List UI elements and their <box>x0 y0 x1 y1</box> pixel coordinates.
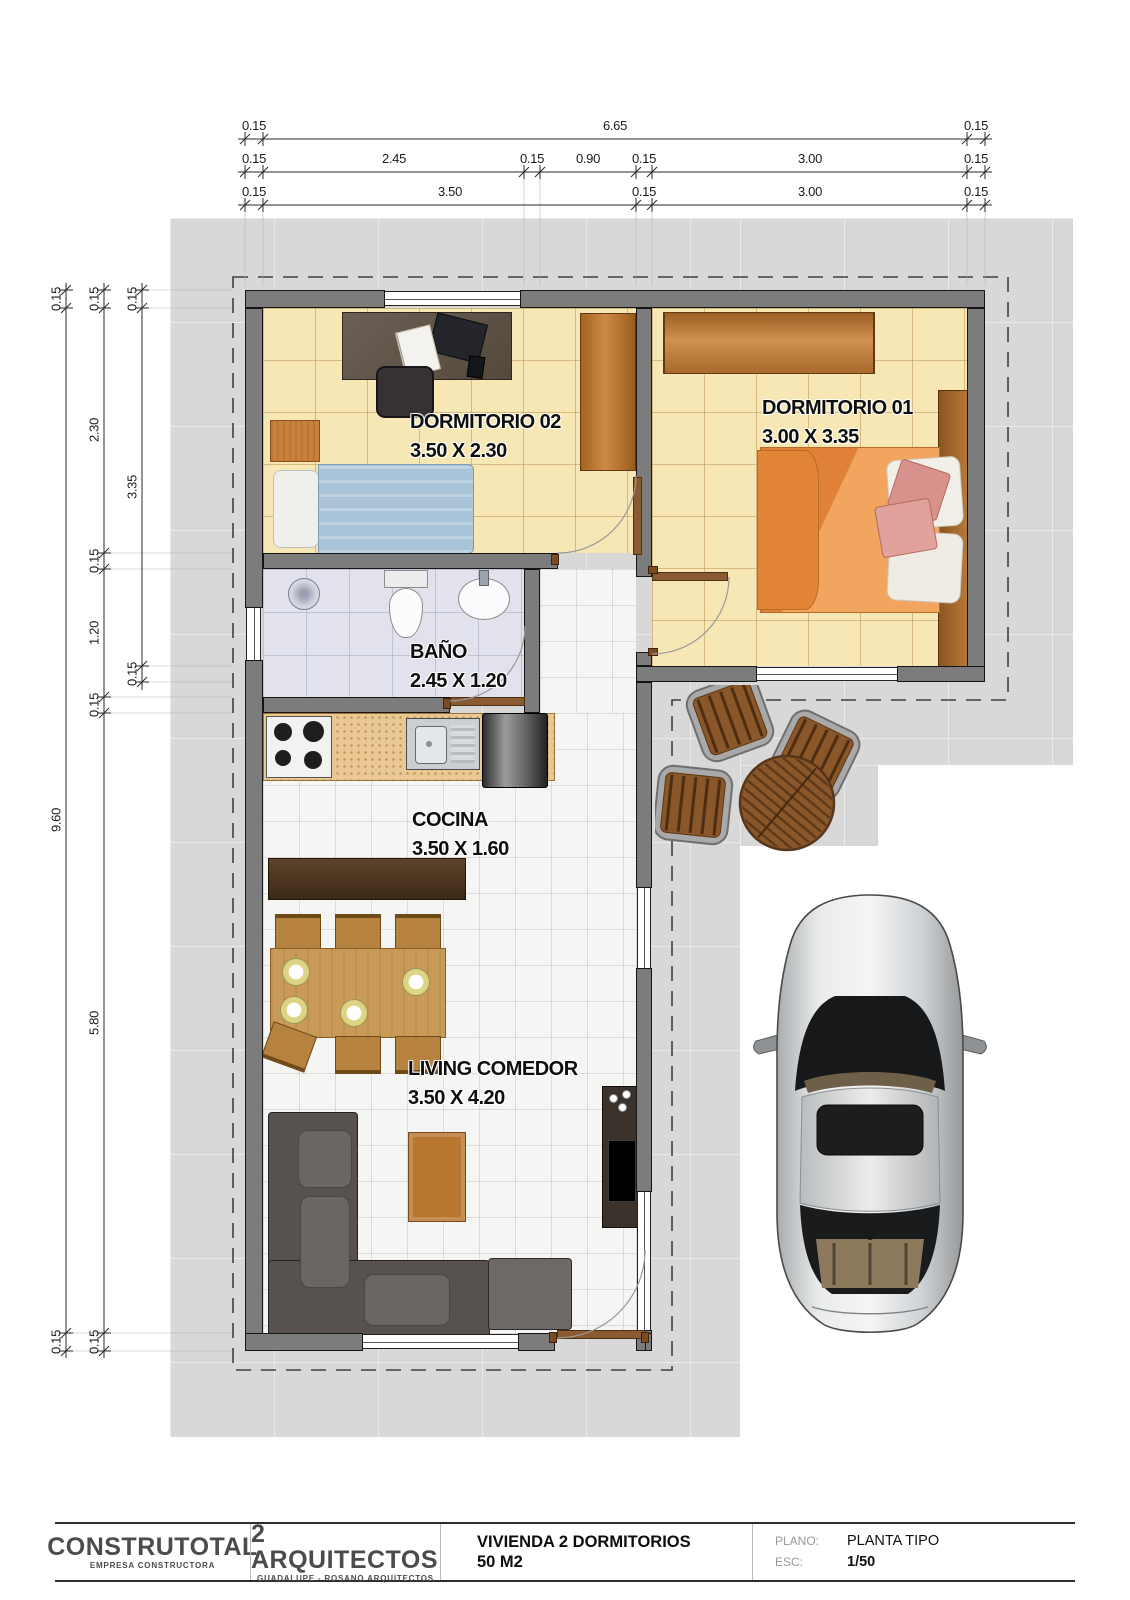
stove <box>266 716 332 778</box>
toilet-tank <box>384 570 428 588</box>
room-label-dormitorio-01: DORMITORIO 013.00 X 3.35 <box>762 394 913 452</box>
door-jamb <box>648 566 658 574</box>
wall <box>967 308 985 682</box>
title-block-project: VIVIENDA 2 DORMITORIOS 50 M2 <box>440 1524 752 1580</box>
wall <box>520 290 985 308</box>
dim-label: 0.15 <box>632 151 656 166</box>
single-bed-blanket <box>318 464 474 554</box>
dim-label: 6.65 <box>603 118 627 133</box>
wall <box>245 660 263 1351</box>
sofa-cushion <box>298 1130 352 1188</box>
bath-sink-tap <box>479 570 489 586</box>
door-leaf-dormitorio-01 <box>652 572 728 581</box>
dim-label: 2.30 <box>87 418 102 442</box>
dim-label: 0.15 <box>242 118 266 133</box>
dim-label: 0.15 <box>242 184 266 199</box>
wall <box>263 553 558 569</box>
car-windshield <box>795 996 945 1091</box>
room-label-dormitorio-02: DORMITORIO 023.50 X 2.30 <box>410 408 561 466</box>
sofa-cushion <box>364 1274 450 1326</box>
door-leaf-entrance <box>557 1330 646 1339</box>
dining-chair <box>275 914 321 952</box>
car-dashboard <box>804 1072 936 1093</box>
sofa-cushion <box>300 1196 350 1288</box>
dim-label: 3.35 <box>125 475 140 499</box>
wall <box>636 682 652 888</box>
company-subtitle: EMPRESA CONSTRUCTORA <box>90 1561 215 1570</box>
dim-label: 0.90 <box>576 151 600 166</box>
car-rear-window <box>800 1205 940 1294</box>
dim-label: 5.80 <box>87 1011 102 1035</box>
closet <box>663 312 875 374</box>
dining-chair <box>335 1036 381 1074</box>
decor-vase <box>618 1103 627 1112</box>
decor-vase <box>622 1090 631 1099</box>
door-jamb <box>648 648 658 656</box>
door-jamb <box>641 1332 649 1343</box>
car-mirror-left <box>754 1035 780 1054</box>
room-label-bano: BAÑO2.45 X 1.20 <box>410 638 507 696</box>
title-block: CONSTRUTOTAL EMPRESA CONSTRUCTORA 2 ARQU… <box>55 1522 1075 1582</box>
tv <box>608 1140 636 1202</box>
plate <box>402 968 430 996</box>
wall <box>245 1333 363 1351</box>
plano-value: PLANTA TIPO <box>847 1531 939 1552</box>
dim-label: 3.00 <box>798 151 822 166</box>
room-label-cocina: COCINA3.50 X 1.60 <box>412 806 509 864</box>
car-body <box>777 895 963 1332</box>
esc-label: ESC: <box>775 1552 847 1573</box>
dim-label: 0.15 <box>87 549 102 573</box>
decor-vase <box>609 1094 618 1103</box>
wall <box>897 666 985 682</box>
window <box>246 608 261 660</box>
wall <box>636 666 757 682</box>
phone <box>467 355 486 379</box>
dim-label: 3.50 <box>438 184 462 199</box>
plano-label: PLANO: <box>775 1531 847 1552</box>
studio-name: 2 ARQUITECTOS <box>251 1521 440 1573</box>
window <box>363 1334 518 1349</box>
project-title: VIVIENDA 2 DORMITORIOS <box>477 1532 691 1552</box>
dim-label: 9.60 <box>49 808 64 832</box>
dim-label: 0.15 <box>49 287 64 311</box>
window <box>637 1192 651 1330</box>
dim-label: 2.45 <box>382 151 406 166</box>
sofa-ottoman <box>488 1258 572 1330</box>
breakfast-bar <box>268 858 466 900</box>
dim-label: 0.15 <box>87 1330 102 1354</box>
dim-label: 0.15 <box>242 151 266 166</box>
kitchen-sink <box>406 718 480 770</box>
wardrobe <box>580 313 636 471</box>
project-area: 50 M2 <box>477 1552 523 1572</box>
studio-subtitle: GUADALUPE - ROSANO ARQUITECTOS <box>257 1574 434 1583</box>
dim-label: 3.00 <box>798 184 822 199</box>
wall <box>636 968 652 1192</box>
floor-hall <box>540 569 636 713</box>
company-name: CONSTRUTOTAL <box>47 1534 258 1560</box>
esc-value: 1/50 <box>847 1552 939 1573</box>
dining-chair <box>335 914 381 952</box>
wall <box>245 308 263 608</box>
wall <box>524 569 540 713</box>
plate <box>340 999 368 1027</box>
door-jamb <box>443 698 451 709</box>
fridge <box>482 713 548 788</box>
shower-drain <box>288 578 320 610</box>
car-mirror-right <box>960 1035 986 1054</box>
car-roof <box>800 1088 940 1211</box>
nightstand <box>270 420 320 462</box>
dim-label: 0.15 <box>964 118 988 133</box>
door-leaf-dormitorio-02 <box>633 477 642 555</box>
door-jamb <box>549 1332 557 1343</box>
window <box>385 291 520 306</box>
car-sunroof <box>817 1105 923 1155</box>
dim-label: 0.15 <box>125 662 140 686</box>
floor-plan-sheet: 0.15 6.65 0.15 0.15 2.45 0.15 0.90 0.15 … <box>0 0 1130 1600</box>
single-bed-pillow <box>273 470 319 548</box>
car <box>750 883 990 1350</box>
dim-label: 0.15 <box>125 287 140 311</box>
plate <box>282 958 310 986</box>
window <box>637 888 651 968</box>
dim-label: 0.15 <box>87 693 102 717</box>
lot-ground-patio <box>740 765 878 846</box>
dim-label: 0.15 <box>964 184 988 199</box>
car-parcel-shelf <box>816 1239 924 1288</box>
title-block-plan-info: PLANO: ESC: PLANTA TIPO 1/50 <box>752 1524 1075 1580</box>
door-leaf-bano <box>450 697 525 706</box>
car-antenna <box>865 1230 875 1240</box>
dim-label: 0.15 <box>87 287 102 311</box>
dim-label: 0.15 <box>520 151 544 166</box>
dim-label: 1.20 <box>87 621 102 645</box>
plate <box>280 996 308 1024</box>
pink-cushion-2 <box>874 498 938 559</box>
dim-label: 0.15 <box>49 1330 64 1354</box>
title-block-company: CONSTRUTOTAL EMPRESA CONSTRUCTORA <box>55 1524 250 1580</box>
wall <box>263 697 450 713</box>
dining-chair <box>395 914 441 952</box>
coffee-table <box>408 1132 466 1222</box>
door-jamb <box>551 554 559 565</box>
window <box>757 667 897 681</box>
room-label-living: LIVING COMEDOR3.50 X 4.20 <box>408 1055 578 1113</box>
wall <box>245 290 385 308</box>
dim-label: 0.15 <box>964 151 988 166</box>
dim-label: 0.15 <box>632 184 656 199</box>
double-bed-blanket-fold <box>757 450 819 610</box>
double-bed-headboard <box>938 390 968 668</box>
title-block-studio: 2 ARQUITECTOS GUADALUPE - ROSANO ARQUITE… <box>250 1524 440 1580</box>
